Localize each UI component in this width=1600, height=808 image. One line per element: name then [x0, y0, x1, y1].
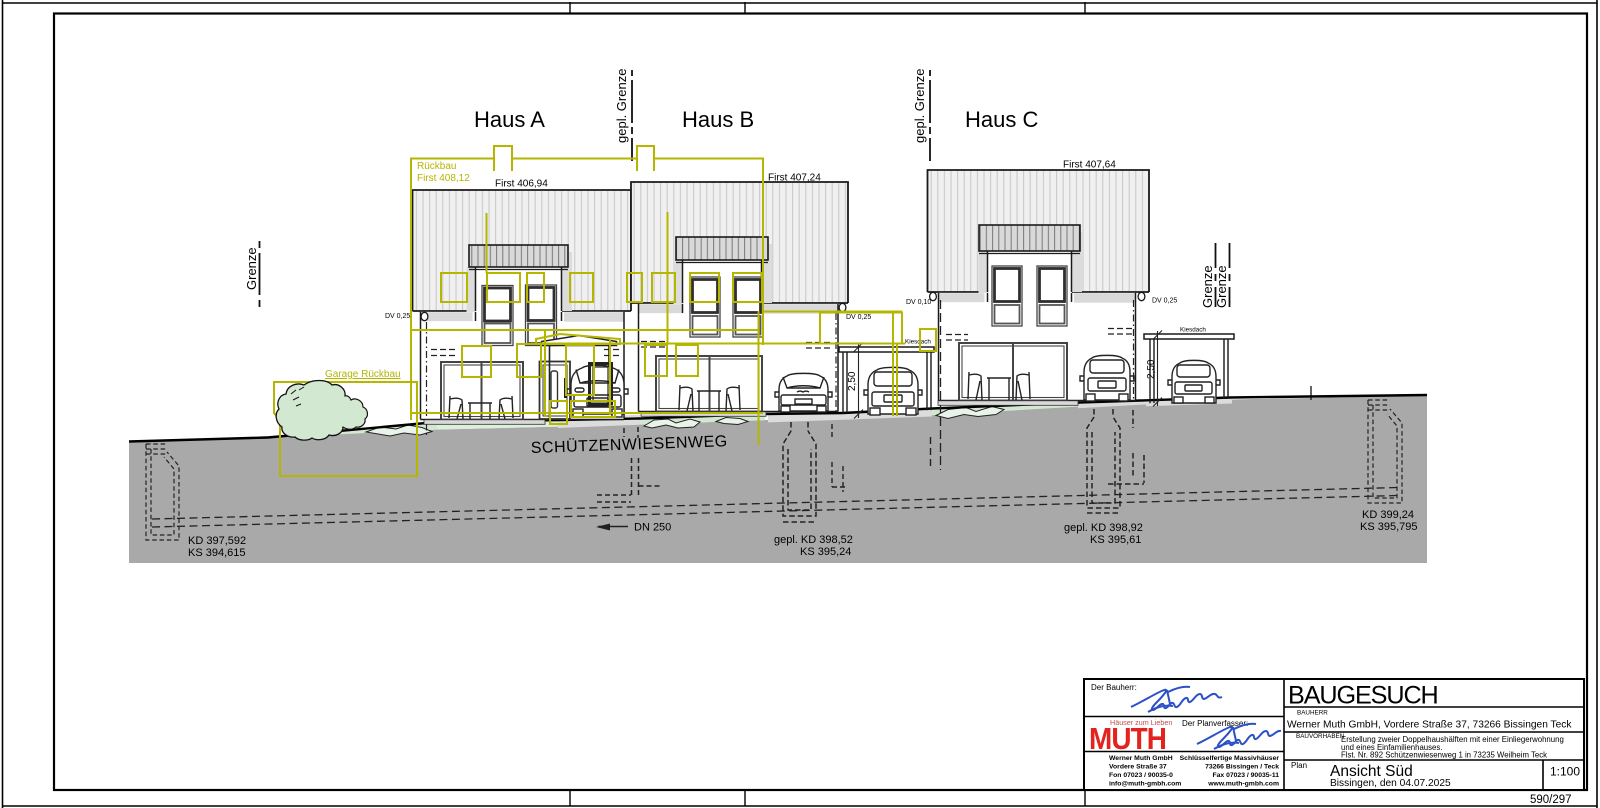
svg-text:Kiesdach: Kiesdach [1180, 327, 1206, 334]
svg-text:gepl. KD 398,52: gepl. KD 398,52 [774, 534, 853, 546]
svg-text:KD 397,592: KD 397,592 [188, 535, 246, 547]
svg-text:KS 395,24: KS 395,24 [800, 546, 851, 558]
svg-text:BAUGESUCH: BAUGESUCH [1288, 682, 1438, 710]
svg-text:Fon 07023 / 90035-0: Fon 07023 / 90035-0 [1109, 772, 1173, 779]
svg-text:gepl. Grenze: gepl. Grenze [912, 69, 927, 143]
svg-text:First 407,64: First 407,64 [1063, 160, 1116, 171]
svg-text:KS 394,615: KS 394,615 [188, 547, 246, 559]
svg-text:DV 0,25: DV 0,25 [846, 314, 871, 321]
svg-text:MUTH: MUTH [1089, 722, 1166, 757]
svg-text:KS 395,795: KS 395,795 [1360, 521, 1418, 533]
svg-text:DV 0,10: DV 0,10 [906, 299, 931, 306]
svg-text:Haus A: Haus A [474, 107, 545, 132]
svg-text:First 408,12: First 408,12 [417, 173, 470, 184]
svg-text:Grenze: Grenze [1200, 265, 1215, 308]
svg-text:Grenze: Grenze [244, 247, 259, 290]
svg-text:Werner Muth GmbH: Werner Muth GmbH [1109, 755, 1173, 762]
svg-text:BAUHERR: BAUHERR [1297, 710, 1328, 717]
svg-text:Flst. Nr. 892 Schützenwiese: Flst. Nr. 892 Schützenwiesenweg 1 in 732… [1341, 751, 1547, 760]
svg-text:Kiesdach: Kiesdach [905, 339, 931, 346]
svg-text:BAUVORHABEN: BAUVORHABEN [1296, 733, 1345, 740]
svg-text:KS 395,61: KS 395,61 [1090, 534, 1141, 546]
svg-text:2,50: 2,50 [847, 371, 858, 391]
svg-text:DN 250: DN 250 [634, 522, 671, 534]
svg-text:Bissingen, den 04.07.2025: Bissingen, den 04.07.2025 [1330, 778, 1451, 789]
svg-text:Werner Muth GmbH, Vordere Stra: Werner Muth GmbH, Vordere Straße 37, 732… [1287, 720, 1572, 731]
svg-text:Schlüsselfertige Massivhäuser: Schlüsselfertige Massivhäuser [1180, 755, 1280, 762]
svg-text:gepl. Grenze: gepl. Grenze [614, 69, 629, 143]
svg-text:DV 0,25: DV 0,25 [1152, 298, 1177, 305]
svg-text:Der Bauherr:: Der Bauherr: [1091, 683, 1137, 692]
svg-text:First 406,94: First 406,94 [495, 179, 548, 190]
svg-text:gepl. KD 398,92: gepl. KD 398,92 [1064, 522, 1143, 534]
svg-text:1:100: 1:100 [1550, 765, 1580, 779]
svg-text:info@muth-gmbh.com: info@muth-gmbh.com [1109, 781, 1181, 788]
svg-text:Vordere Straße 37: Vordere Straße 37 [1109, 764, 1167, 771]
svg-text:Rückbau: Rückbau [417, 161, 456, 172]
svg-text:Plan: Plan [1291, 761, 1307, 770]
svg-text:Fax 07023 / 90035-11: Fax 07023 / 90035-11 [1212, 772, 1279, 779]
svg-text:Haus C: Haus C [965, 107, 1038, 132]
svg-text:590/297: 590/297 [1530, 794, 1572, 806]
svg-text:First 407,24: First 407,24 [768, 173, 821, 184]
svg-text:Garage Rückbau: Garage Rückbau [325, 369, 401, 380]
svg-text:DV 0,25: DV 0,25 [385, 313, 410, 320]
svg-text:www.muth-gmbh.com: www.muth-gmbh.com [1207, 781, 1279, 788]
svg-text:2,50: 2,50 [1146, 359, 1157, 379]
svg-text:Haus B: Haus B [682, 107, 754, 132]
svg-text:73266 Bissingen / Teck: 73266 Bissingen / Teck [1205, 764, 1279, 771]
svg-text:KD 399,24: KD 399,24 [1362, 509, 1414, 521]
